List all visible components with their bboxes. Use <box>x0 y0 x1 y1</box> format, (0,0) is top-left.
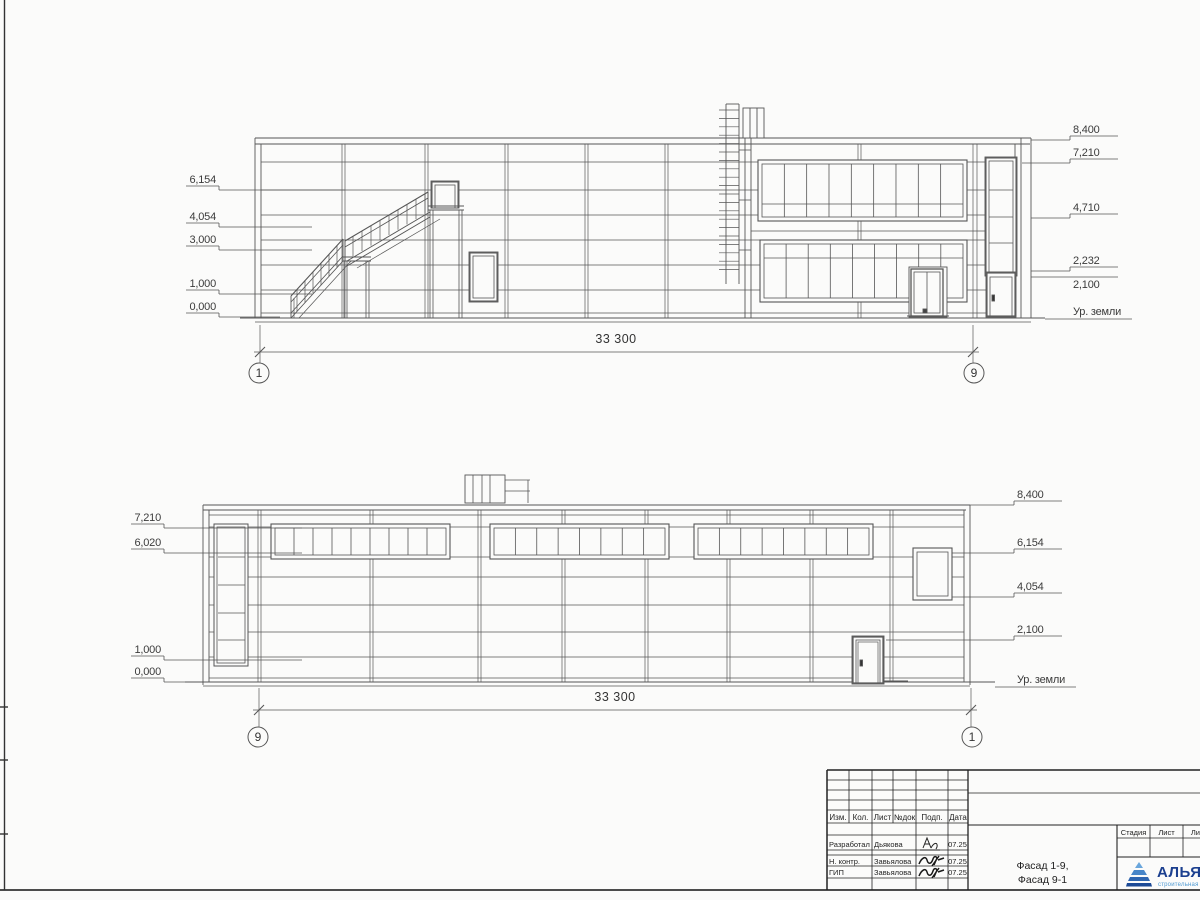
stage-header: Стадия <box>1117 828 1150 837</box>
elevation-mark: 6,020 <box>105 537 161 549</box>
elevation-mark: 2,232 <box>1073 255 1100 267</box>
elevation-mark: 4,054 <box>160 211 216 223</box>
elevation-leader-lines <box>131 136 1132 687</box>
elevation-mark: 7,210 <box>1073 147 1100 159</box>
elevation-mark: 8,400 <box>1017 489 1044 501</box>
drawing-title: Фасад 1-9, <box>968 860 1117 872</box>
elevation-mark: 4,710 <box>1073 202 1100 214</box>
axis-bubble-label: 9 <box>250 730 266 744</box>
elevation-mark: 0,000 <box>105 666 161 678</box>
exterior-stair <box>291 192 464 318</box>
dimension-label: 33 300 <box>566 332 666 346</box>
sheet-header: Лист <box>1150 828 1183 837</box>
drawing-sheet: 6,154 4,054 3,000 1,000 0,000 8,400 7,21… <box>0 0 1200 900</box>
sheet-frame <box>0 0 1200 890</box>
signature-icon <box>919 838 944 878</box>
axis-bubble-label: 9 <box>966 366 982 380</box>
ground-level-mark: Ур. земли <box>1073 306 1121 318</box>
titleblock-name: Завьялова <box>874 868 911 877</box>
elevation-mark: 7,210 <box>105 512 161 524</box>
elevation-mark: 0,000 <box>160 301 216 313</box>
facade-1-9-windows <box>431 108 1017 317</box>
titleblock-header: Кол. <box>849 813 872 822</box>
drawing-canvas <box>0 0 1200 900</box>
drawing-title: Фасад 9-1 <box>968 874 1117 886</box>
company-subtitle: строительная компания <box>1158 882 1200 888</box>
ground-level-mark: Ур. земли <box>1017 674 1065 686</box>
titleblock-role: Разработал <box>829 840 870 849</box>
titleblock-role: ГИП <box>829 868 844 877</box>
elevation-mark: 6,154 <box>160 174 216 186</box>
elevation-mark: 1,000 <box>160 278 216 290</box>
elevation-mark: 6,154 <box>1017 537 1044 549</box>
sheets-header: Листов <box>1183 828 1200 837</box>
company-name: АЛЬЯНС <box>1157 864 1200 881</box>
company-logo-icon <box>1126 862 1152 887</box>
dimension-label: 33 300 <box>565 690 665 704</box>
axis-bubble-label: 1 <box>251 366 267 380</box>
titleblock-name: Завьялова <box>874 857 911 866</box>
titleblock-date: 07.25 <box>947 857 968 866</box>
elevation-mark: 2,100 <box>1017 624 1044 636</box>
elevation-mark: 3,000 <box>160 234 216 246</box>
titleblock-header: Лист <box>872 813 893 822</box>
titleblock-role: Н. контр. <box>829 857 860 866</box>
elevation-mark: 8,400 <box>1073 124 1100 136</box>
titleblock-header: Дата <box>948 813 968 822</box>
titleblock-header: №док <box>893 813 916 822</box>
titleblock-header: Изм. <box>827 813 849 822</box>
facade-9-1-windows <box>214 475 952 684</box>
elevation-mark: 2,100 <box>1073 279 1100 291</box>
titleblock-header: Подп. <box>916 813 948 822</box>
titleblock-date: 07.25 <box>947 840 968 849</box>
titleblock-name: Дьякова <box>874 840 903 849</box>
elevation-mark: 4,054 <box>1017 581 1044 593</box>
elevation-mark: 1,000 <box>105 644 161 656</box>
titleblock-date: 07.25 <box>947 868 968 877</box>
axis-bubble-label: 1 <box>964 730 980 744</box>
